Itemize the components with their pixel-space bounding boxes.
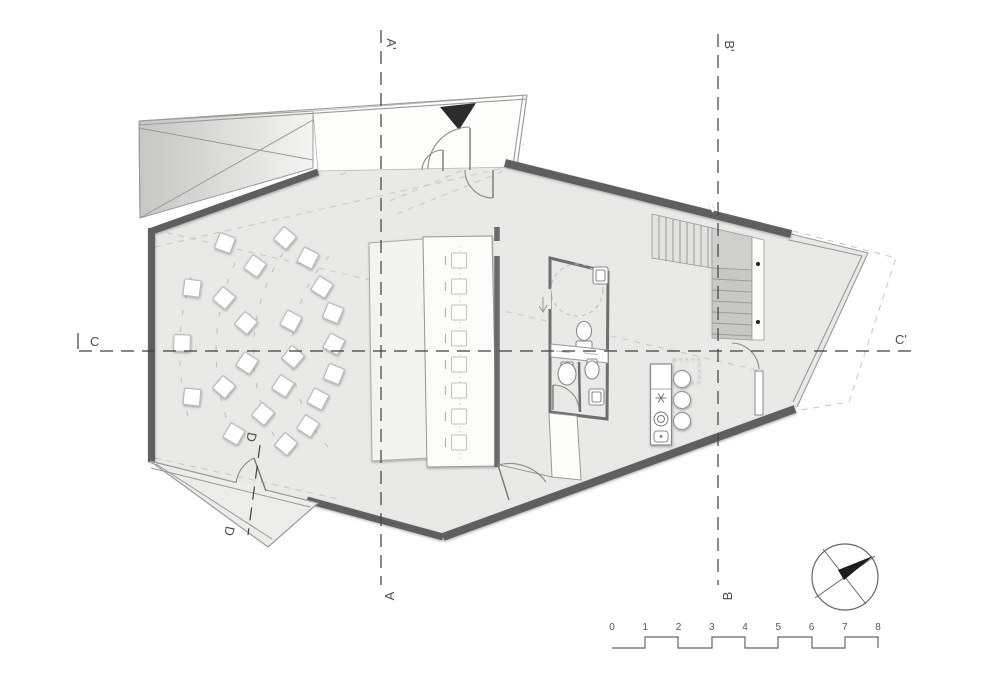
toilet [577,322,592,341]
audience-chair [183,388,201,406]
table-seat [452,383,467,398]
table-seat [452,279,467,294]
table-seat [452,331,467,346]
scale-number: 6 [809,622,815,633]
scale-number: 7 [842,622,848,633]
section-label-c-left: C [90,334,99,349]
table-seat [452,357,467,372]
scale-number: 4 [742,622,748,633]
scale-number: 8 [875,622,881,633]
section-label-b-bottom: B [720,592,735,601]
floor-plan-sheet: A' B' C C' A B D D 012345678 [0,0,1000,682]
scale-number: 2 [676,622,682,633]
audience-chair [183,279,202,298]
audience-chair [174,335,191,352]
bar-stool [674,392,691,409]
table-seat [452,253,467,268]
floor-plan-drawing: A' B' C C' A B D D 012345678 [0,0,1000,682]
table-seat [452,305,467,320]
section-label-c-right: C' [895,332,907,347]
bar-stool [674,413,691,430]
section-label-a-bottom: A [382,591,397,600]
scale-number: 1 [642,622,648,633]
section-label-a-top: A' [384,38,399,49]
long-table [369,236,497,467]
toilet [585,361,599,379]
table-seat [452,409,467,424]
scale-number: 5 [775,622,781,633]
stair-door-leaf [755,371,763,415]
toilet [558,363,576,385]
bar-stool [674,371,691,388]
scale-number: 3 [709,622,715,633]
scale-number: 0 [609,622,615,633]
section-label-b-top: B' [722,40,737,51]
table-seat [452,435,467,450]
wall-stub [549,413,581,480]
bar-stools [674,371,691,430]
